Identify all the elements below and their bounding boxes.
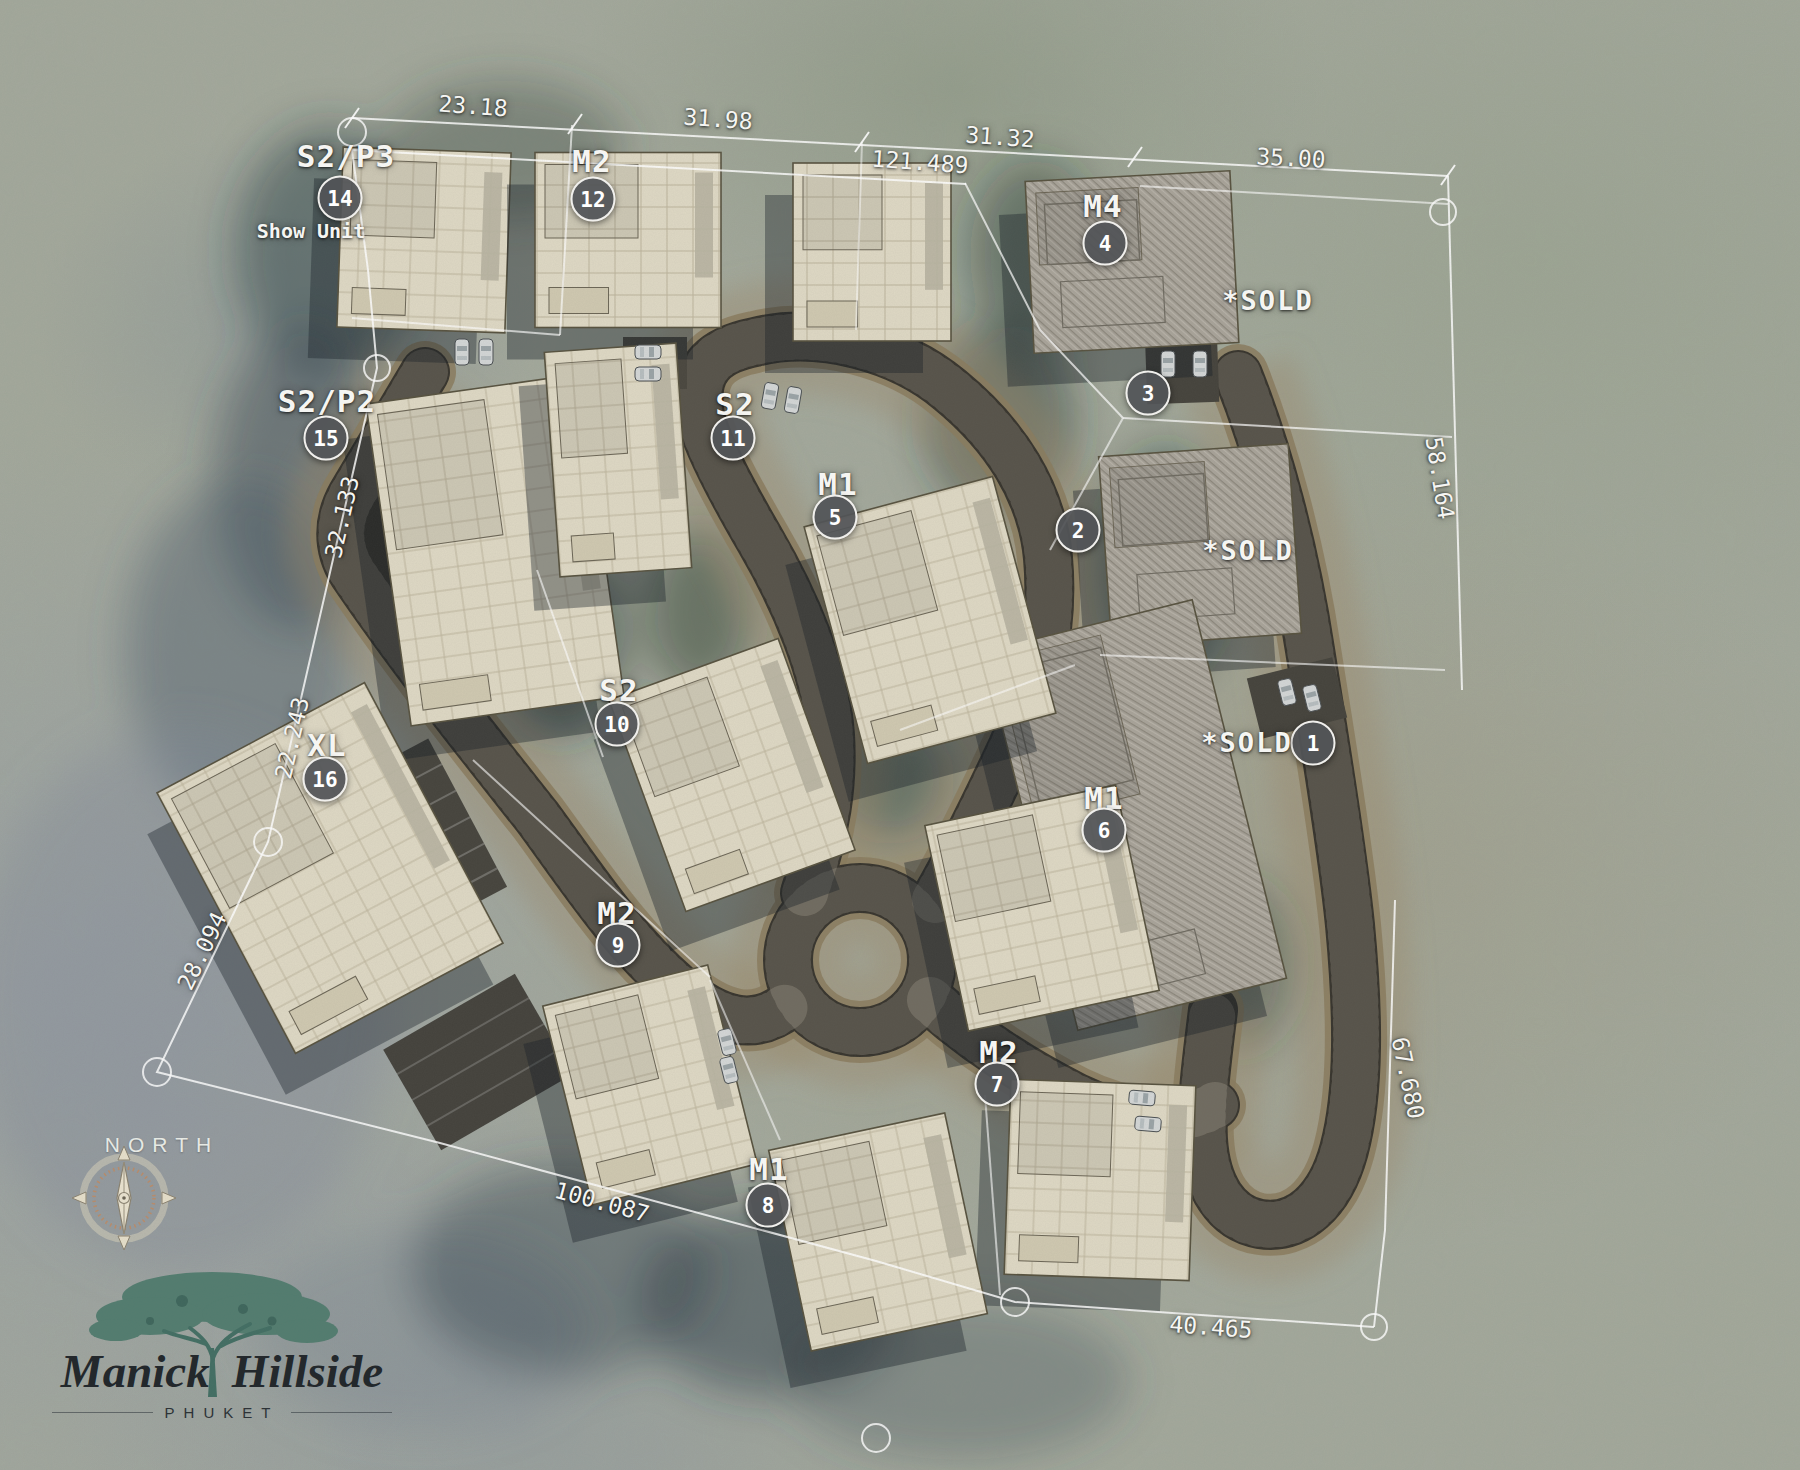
logo-subtitle-row: PHUKET <box>52 1404 392 1421</box>
plot-marker-5[interactable]: 5 <box>813 495 858 540</box>
north-label: NORTH <box>105 1133 219 1157</box>
plot-marker-1[interactable]: 1 <box>1291 721 1336 766</box>
plot-marker-8[interactable]: 8 <box>746 1183 791 1228</box>
dimension-label: 40.465 <box>1169 1311 1254 1343</box>
logo-wordmark: ManickHillside <box>52 1348 392 1395</box>
dimension-label: 28.094 <box>172 908 232 994</box>
sold-label: *SOLD <box>1201 727 1292 758</box>
plot-marker-6[interactable]: 6 <box>1082 808 1127 853</box>
plot-marker-14[interactable]: 14 <box>318 176 363 221</box>
plot-marker-3[interactable]: 3 <box>1126 371 1171 416</box>
plot-marker-11[interactable]: 11 <box>711 416 756 461</box>
plot-type-label: M2 <box>572 143 611 179</box>
dimension-label: 35.00 <box>1256 143 1327 173</box>
dimension-label: 31.32 <box>965 122 1036 153</box>
site-plan: NORTH ManickHillside PHUKET S2/P314Show … <box>0 0 1800 1470</box>
dimension-label: 121.489 <box>871 146 970 179</box>
plot-type-label: S2/P3 <box>297 138 395 174</box>
plot-marker-9[interactable]: 9 <box>596 923 641 968</box>
sold-label: *SOLD <box>1202 535 1293 566</box>
logo-subtitle: PHUKET <box>165 1404 280 1421</box>
plot-marker-4[interactable]: 4 <box>1083 221 1128 266</box>
plot-marker-10[interactable]: 10 <box>595 702 640 747</box>
logo-word-1: Manick <box>61 1345 210 1397</box>
show-unit-label: Show Unit <box>257 219 365 243</box>
logo-rule-left <box>52 1412 153 1413</box>
plot-marker-16[interactable]: 16 <box>303 757 348 802</box>
dimension-label: 100.087 <box>552 1177 652 1227</box>
plot-marker-12[interactable]: 12 <box>571 177 616 222</box>
plot-marker-2[interactable]: 2 <box>1056 508 1101 553</box>
plot-type-label: S2/P2 <box>278 383 376 419</box>
dimension-label: 32.133 <box>320 474 364 561</box>
dimension-label: 23.18 <box>438 91 509 122</box>
logo-rule-right <box>291 1412 392 1413</box>
dimension-label: 58.164 <box>1421 435 1460 521</box>
dimension-label: 67.680 <box>1387 1035 1430 1122</box>
sold-label: *SOLD <box>1222 285 1313 316</box>
dimension-label: 31.98 <box>683 104 754 135</box>
plot-type-label: M4 <box>1083 188 1122 224</box>
labels-layer: NORTH ManickHillside PHUKET S2/P314Show … <box>0 0 1800 1470</box>
plot-marker-7[interactable]: 7 <box>975 1062 1020 1107</box>
logo-word-2: Hillside <box>232 1345 383 1397</box>
plot-marker-15[interactable]: 15 <box>304 416 349 461</box>
